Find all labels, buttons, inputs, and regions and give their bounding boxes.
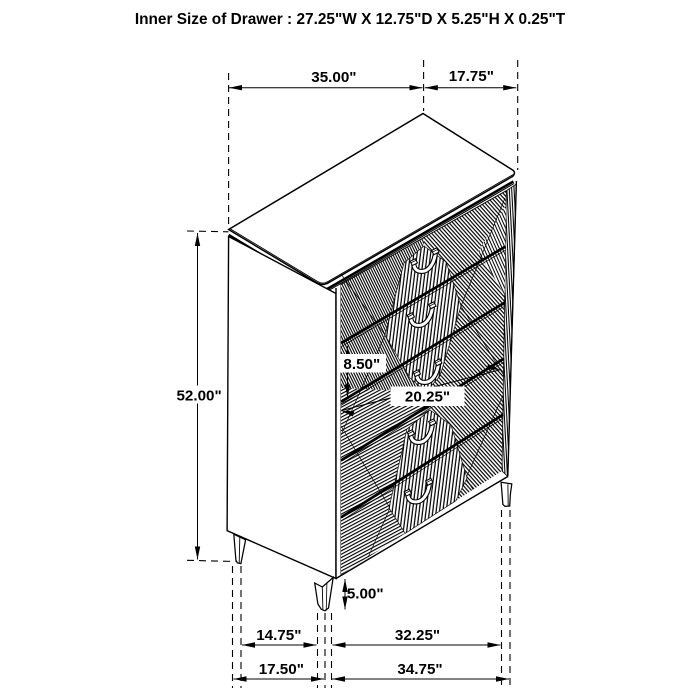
svg-text:8.50": 8.50" — [343, 356, 380, 373]
svg-text:52.00": 52.00" — [176, 388, 221, 405]
svg-text:17.50": 17.50" — [259, 661, 304, 678]
svg-text:34.75": 34.75" — [397, 661, 442, 678]
svg-text:14.75": 14.75" — [256, 627, 301, 644]
svg-text:5.00": 5.00" — [347, 586, 384, 603]
svg-text:17.75": 17.75" — [449, 68, 494, 85]
svg-text:35.00": 35.00" — [311, 69, 356, 86]
svg-text:Inner Size of Drawer : 27.25"W: Inner Size of Drawer : 27.25"W X 12.75"D… — [135, 11, 566, 28]
svg-text:32.25": 32.25" — [395, 627, 440, 644]
svg-text:20.25": 20.25" — [405, 389, 450, 406]
